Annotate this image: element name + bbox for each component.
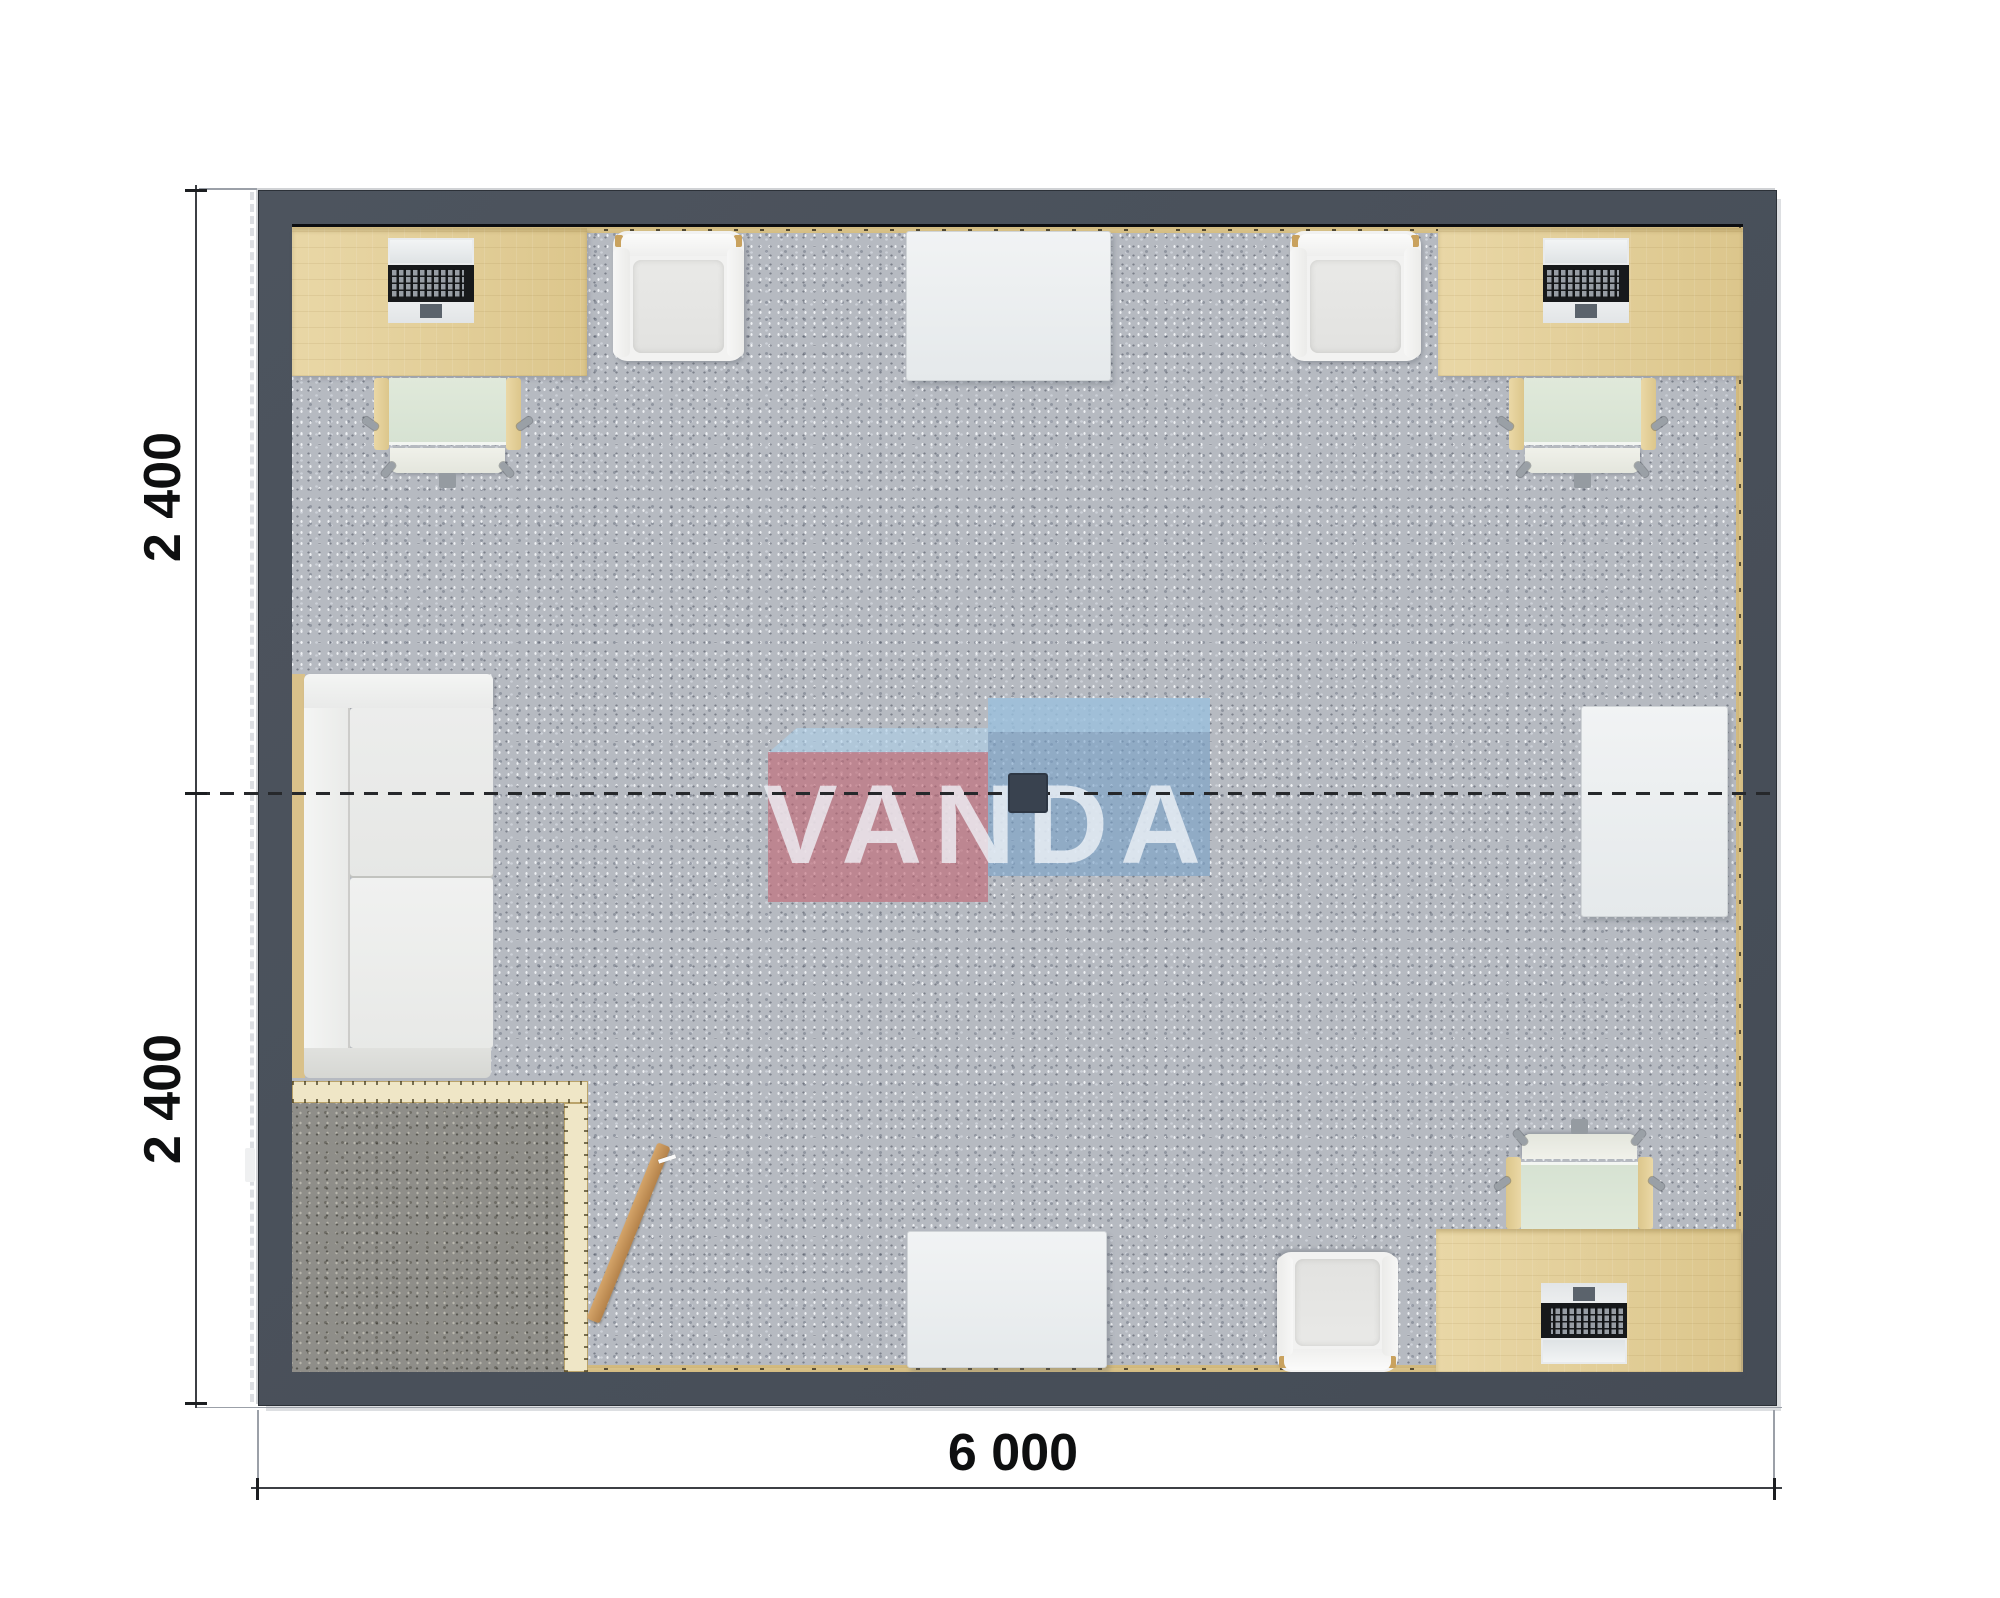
office-chair-bottom-right — [1506, 1113, 1653, 1229]
armchair-backrest — [1284, 1349, 1391, 1369]
chair-stem — [439, 473, 457, 488]
vestibule-partition-top — [292, 1081, 588, 1103]
laptop-screen — [1541, 1338, 1627, 1364]
dimension-label-height-bottom: 2 400 — [133, 999, 193, 1199]
watermark-blue-top-face — [988, 698, 1210, 732]
dimension-tick — [185, 189, 207, 192]
vestibule-door-leaf — [587, 1142, 671, 1323]
laptop-bottom-right — [1541, 1283, 1627, 1364]
chair-backrest — [390, 448, 505, 474]
chair-backrest — [1525, 448, 1640, 474]
chair-armrest — [1506, 1157, 1521, 1229]
armchair-top-right — [1290, 231, 1421, 361]
chair-seat — [1524, 378, 1642, 445]
laptop-keyboard — [1543, 265, 1629, 302]
dimension-tick — [1773, 1478, 1776, 1500]
partition-hatching — [292, 1081, 588, 1085]
meeting-table-bottom — [907, 1231, 1107, 1368]
armchair-backrest — [1298, 234, 1413, 256]
laptop-touchpad — [420, 304, 442, 318]
floorplan-canvas: 2 400 2 400 6 000 — [0, 0, 2000, 1598]
armchair-armrest — [1277, 1256, 1293, 1357]
laptop-top-left — [388, 238, 474, 323]
watermark-text: VANDA — [760, 750, 1216, 900]
sofa-backrest — [304, 708, 350, 1048]
armchair-cushion — [1295, 1259, 1380, 1345]
office-chair-top-left — [374, 378, 521, 494]
partition-hatching — [292, 1099, 588, 1103]
laptop-palmrest — [388, 302, 474, 323]
chair-armrest — [1638, 1157, 1653, 1229]
laptop-screen — [1543, 238, 1629, 265]
laptop-top-right — [1543, 238, 1629, 323]
vanda-watermark: VANDA — [740, 690, 1240, 920]
vestibule-partition-right — [564, 1103, 588, 1372]
armchair-cushion — [633, 260, 725, 354]
chair-armrest — [1641, 378, 1656, 450]
armchair-backrest — [621, 234, 736, 256]
laptop-palmrest — [1543, 302, 1629, 323]
floor-edge-sill-right — [1736, 224, 1743, 1372]
chair-armrest — [1509, 378, 1524, 450]
armchair-armrest — [613, 248, 630, 357]
office-chair-top-right — [1509, 378, 1656, 494]
wall-inner-shadow — [292, 224, 1743, 227]
dimension-tick — [185, 792, 207, 795]
laptop-keyboard — [1541, 1303, 1627, 1338]
extension-line-bottom — [196, 1407, 1782, 1408]
office-floor-carpet — [292, 224, 1743, 1372]
chair-armrest — [374, 378, 389, 450]
chair-wheel — [1630, 1129, 1646, 1147]
ceiling-lamp — [1008, 773, 1048, 813]
module-joint-dashed-line — [196, 792, 1775, 795]
laptop-keyboard — [388, 265, 474, 302]
vestibule-floor-carpet — [292, 1103, 564, 1372]
desk-top-right — [1438, 228, 1743, 376]
side-table-right — [1581, 706, 1728, 917]
desk-top-left — [292, 228, 587, 376]
chair-armrest — [506, 378, 521, 450]
partition-hatching — [564, 1103, 568, 1372]
armchair-top-left — [613, 231, 744, 361]
sofa-left — [292, 674, 493, 1078]
dimension-label-width: 6 000 — [913, 1424, 1113, 1482]
chair-stem — [1574, 473, 1592, 488]
chair-stem — [1571, 1119, 1589, 1134]
partition-hatching — [584, 1103, 588, 1372]
armchair-armrest — [1382, 1256, 1398, 1357]
sofa-cushion — [350, 878, 493, 1048]
dimension-line-bottom — [251, 1487, 1782, 1489]
desk-bottom-right — [1436, 1229, 1741, 1372]
dimension-tick — [185, 1402, 207, 1405]
dimension-line-left — [195, 185, 197, 1408]
sofa-armrest-top — [304, 674, 493, 708]
chair-seat — [389, 378, 507, 445]
armchair-cushion — [1310, 260, 1402, 354]
dimension-tick — [256, 1478, 259, 1500]
exterior-door-handle — [245, 1148, 255, 1182]
wall-cladding-dashes — [250, 192, 254, 1402]
laptop-touchpad — [1573, 1287, 1595, 1301]
armchair-bottom — [1277, 1252, 1398, 1372]
armchair-armrest — [1290, 248, 1307, 357]
extension-line-top-left — [199, 188, 257, 190]
laptop-palmrest — [1541, 1283, 1627, 1303]
sofa-armrest-bottom — [304, 1048, 491, 1078]
armchair-armrest — [1404, 248, 1421, 357]
dimension-label-height-top: 2 400 — [133, 397, 193, 597]
chair-backrest — [1522, 1134, 1637, 1160]
laptop-screen — [388, 238, 474, 265]
armchair-armrest — [727, 248, 744, 357]
chair-seat — [1521, 1162, 1639, 1229]
building-walls — [258, 190, 1777, 1406]
laptop-touchpad — [1575, 304, 1597, 318]
meeting-table-top — [906, 231, 1111, 381]
door-handle — [658, 1154, 676, 1163]
